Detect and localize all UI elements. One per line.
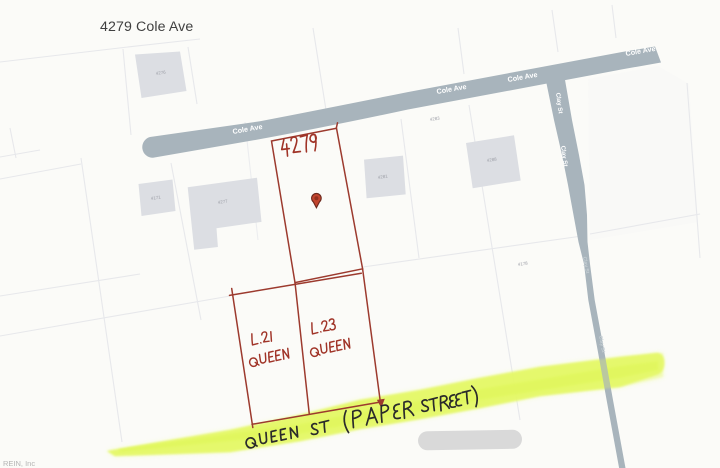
svg-text:Clay St: Clay St: [559, 145, 569, 167]
svg-text:REIN, Inc: REIN, Inc: [3, 459, 35, 468]
svg-text:4279 Cole Ave: 4279 Cole Ave: [100, 19, 193, 35]
svg-text:4283: 4283: [429, 115, 440, 122]
svg-text:4178: 4178: [517, 260, 528, 267]
